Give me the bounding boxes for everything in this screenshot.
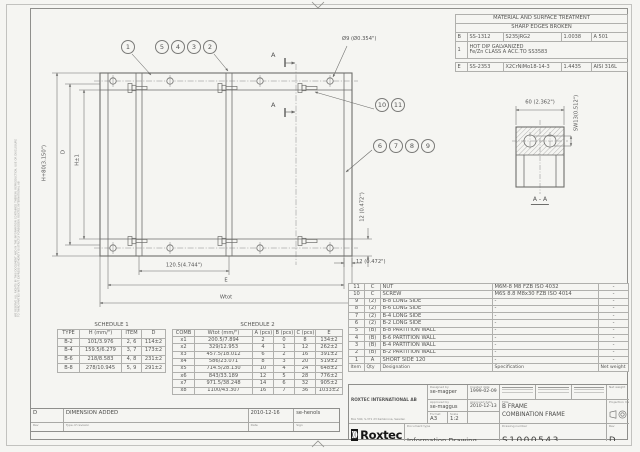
table-row: 3(B)B-4 PARTITION WALL-- (349, 342, 629, 349)
dim-wtot: Wtot (220, 295, 232, 300)
front-view (94, 58, 358, 265)
net-weight-cell: Net weight (606, 385, 629, 399)
balloon-11: 11 (391, 98, 405, 112)
dim-section-width: 60 (2.362") (525, 100, 555, 105)
table-row: E SS-2353 X2CrNiMo18-14-3 1.4435 AISI 31… (456, 63, 628, 72)
table-row: 10CSCREWM6S 8.8 M8x30 FZB ISO 4014- (349, 291, 629, 298)
tolerance-note-block-3 (571, 385, 606, 399)
section-mark-letter-top: A (271, 52, 275, 59)
balloon-9: 9 (421, 139, 435, 153)
balloon-6: 6 (373, 139, 387, 153)
company-cell: ROXTEC INTERNATIONAL AB Box 540, S-371 2… (349, 385, 427, 423)
table-row: MATERIAL AND SURFACE TREATMENT (456, 15, 628, 24)
revision-letter: D (33, 410, 61, 417)
table-row: x2329/12.9534112262±2 (173, 344, 343, 351)
table-row: x81100/43.307167361033±2 (173, 387, 343, 394)
schedule-2-title: SCHEDULE 2 (172, 322, 343, 328)
title-block: ROXTEC INTERNATIONAL AB Box 540, S-371 2… (348, 384, 628, 440)
table-row: TYPEH (mm/")ITEMD (58, 330, 166, 339)
format-value: A3 (430, 416, 445, 423)
balloon-4: 4 (171, 40, 185, 54)
table-row: x1200.5/7.894208134±2 (173, 337, 343, 344)
parts-list: 11CNUTM6M-8 M8 FZB ISO 4032-10CSCREWM6S … (348, 283, 629, 372)
table-row: 6(2)B-2 LONG SIDE-- (349, 320, 629, 327)
balloon-7: 7 (389, 139, 403, 153)
balloon-3: 3 (187, 40, 201, 54)
spare-cell (467, 411, 499, 423)
revision-cell: Rev D (606, 423, 629, 441)
mounting-holes (110, 75, 333, 254)
table-row: x7971.5/38.24814632905±2 (173, 380, 343, 387)
table-row: x4586/23.0718320519±2 (173, 358, 343, 365)
table-row: 1ASHORT SIDE 120-- (349, 356, 629, 363)
tolerance-note-block-2 (535, 385, 571, 399)
schedule-2: SCHEDULE 2 COMBWtot (mm/")A (pcs)B (pcs)… (172, 322, 343, 395)
approved-by-value: se-maggus (430, 404, 465, 410)
table-row: 11CNUTM6M-8 M8 FZB ISO 4032- (349, 284, 629, 291)
table-row: 4(B)B-6 PARTITION WALL-- (349, 335, 629, 342)
drawing-title-line1: B FRAME (502, 404, 604, 411)
section-view (512, 106, 571, 194)
document-type-value: Information Drawing (407, 437, 477, 441)
table-row: 7(2)B-4 LONG SIDE-- (349, 313, 629, 320)
dim-h: H±1 (75, 154, 80, 166)
company-address-1: Box 540, S-371 23 Karlskrona, Sweden (351, 417, 405, 421)
table-row: 8(2)B-6 LONG SIDE-- (349, 305, 629, 312)
designed-by-value: se-magper (430, 389, 465, 395)
revision-date: 2010-12-16 (251, 410, 292, 416)
tolerance-note-block-1 (499, 385, 535, 399)
table-row: B-4159.5/6.2793, 7173±2 (58, 347, 166, 356)
table-row: 1 HOT DIP GALVANIZED Fe/Zn CLASS A ACC.T… (456, 42, 628, 59)
table-row: COMBWtot (mm/")A (pcs)B (pcs)C (pcs)E (173, 330, 343, 337)
bolt-symbols (128, 84, 317, 246)
created-date-cell: Created date 1999-02-09 (467, 385, 499, 399)
dim-height-total: H+80(3.150") (42, 145, 47, 181)
company-name: ROXTEC INTERNATIONAL AB (351, 397, 417, 402)
dim-d: D (61, 150, 66, 154)
dim-hole-diameter: Ø9 (Ø0.354") (342, 37, 376, 42)
title-cell: Title B FRAME COMBINATION FRAME (499, 399, 606, 423)
designed-by-cell: Designed by se-magper (427, 385, 467, 399)
revision-sign: se-henols (296, 410, 337, 416)
material-table: MATERIAL AND SURFACE TREATMENT SHARP EDG… (455, 14, 628, 72)
table-row: x5714.5/28.13010424648±2 (173, 365, 343, 372)
dim-sw: SW13(0.512") (574, 95, 579, 131)
logo-cell: ))) Roxtec (349, 423, 404, 441)
approved-date-value: 2010-12-13 (470, 404, 497, 410)
table-row: 2(B)B-2 PARTITION WALL-- (349, 349, 629, 356)
drawing-number-cell: Drawing number S1000543 (499, 423, 606, 441)
roxtec-logo: ))) Roxtec (351, 428, 402, 441)
dim-e: E (224, 278, 227, 283)
section-cut-marks (285, 58, 295, 117)
surface-treatment-line2: Fe/Zn CLASS A ACC.TO SS3583 (470, 50, 626, 55)
table-row: ItemQtyDesignationSpecificationNet weigh… (349, 364, 629, 372)
table-row: SHARP EDGES BROKEN (456, 24, 628, 33)
table-row: 5(B)B-8 PARTITION WALL-- (349, 327, 629, 334)
revision-value: D (609, 436, 616, 441)
revision-description: DIMENSION ADDED (66, 410, 246, 417)
dim-offset-vertical: 12 (0.472") (360, 192, 365, 222)
balloon-5: 5 (155, 40, 169, 54)
projection-method-icon (609, 410, 628, 419)
table-row: x6843/33.18912528776±2 (173, 373, 343, 380)
dim-pitch: 120.5(4.744") (166, 263, 202, 268)
roxtec-logo-icon: ))) (351, 429, 358, 442)
schedule-1: SCHEDULE 1 TYPEH (mm/")ITEMDB-2101/3.976… (57, 322, 166, 373)
table-row: 9(2)B-8 LONG SIDE-- (349, 298, 629, 305)
projection-cell: Projection method (606, 399, 629, 423)
scale-cell: Scale 1:2 (447, 411, 467, 423)
table-row: x3457.5/18.0126216391±2 (173, 351, 343, 358)
balloon-2: 2 (203, 40, 217, 54)
balloon-10: 10 (375, 98, 389, 112)
drawing-sheet: WE RESERVE ALL RIGHTS IN THIS DOCUMENT A… (0, 0, 640, 452)
roxtec-logo-text: Roxtec (360, 428, 402, 441)
document-type-cell: Document type Information Drawing (404, 423, 499, 441)
dim-offset-right: 12 (0.472") (356, 260, 386, 265)
section-mark-letter-bottom: A (271, 102, 275, 109)
table-row: B-2101/3.9762, 6114±2 (58, 338, 166, 347)
drawing-title-line2: COMBINATION FRAME (502, 412, 604, 419)
created-date-value: 1999-02-09 (470, 389, 497, 395)
section-view-label: A - A (531, 197, 549, 205)
schedule-1-title: SCHEDULE 1 (57, 322, 166, 328)
table-row: B-6218/8.5834, 8231±2 (58, 355, 166, 364)
format-cell: Format A3 (427, 411, 447, 423)
scale-value: 1:2 (450, 416, 465, 423)
drawing-number-value: S1000543 (502, 436, 560, 441)
approved-by-cell: Approved by se-maggus (427, 399, 467, 411)
approved-date-cell: Approved date 2010-12-13 (467, 399, 499, 411)
balloon-8: 8 (405, 139, 419, 153)
balloon-1: 1 (121, 40, 135, 54)
revision-block: D DIMENSION ADDED 2010-12-16 se-henols R… (30, 408, 340, 432)
table-row: B SS-1312 S235JRG2 1.0038 A 501 (456, 33, 628, 42)
table-row: B-8278/10.9455, 9291±2 (58, 364, 166, 373)
